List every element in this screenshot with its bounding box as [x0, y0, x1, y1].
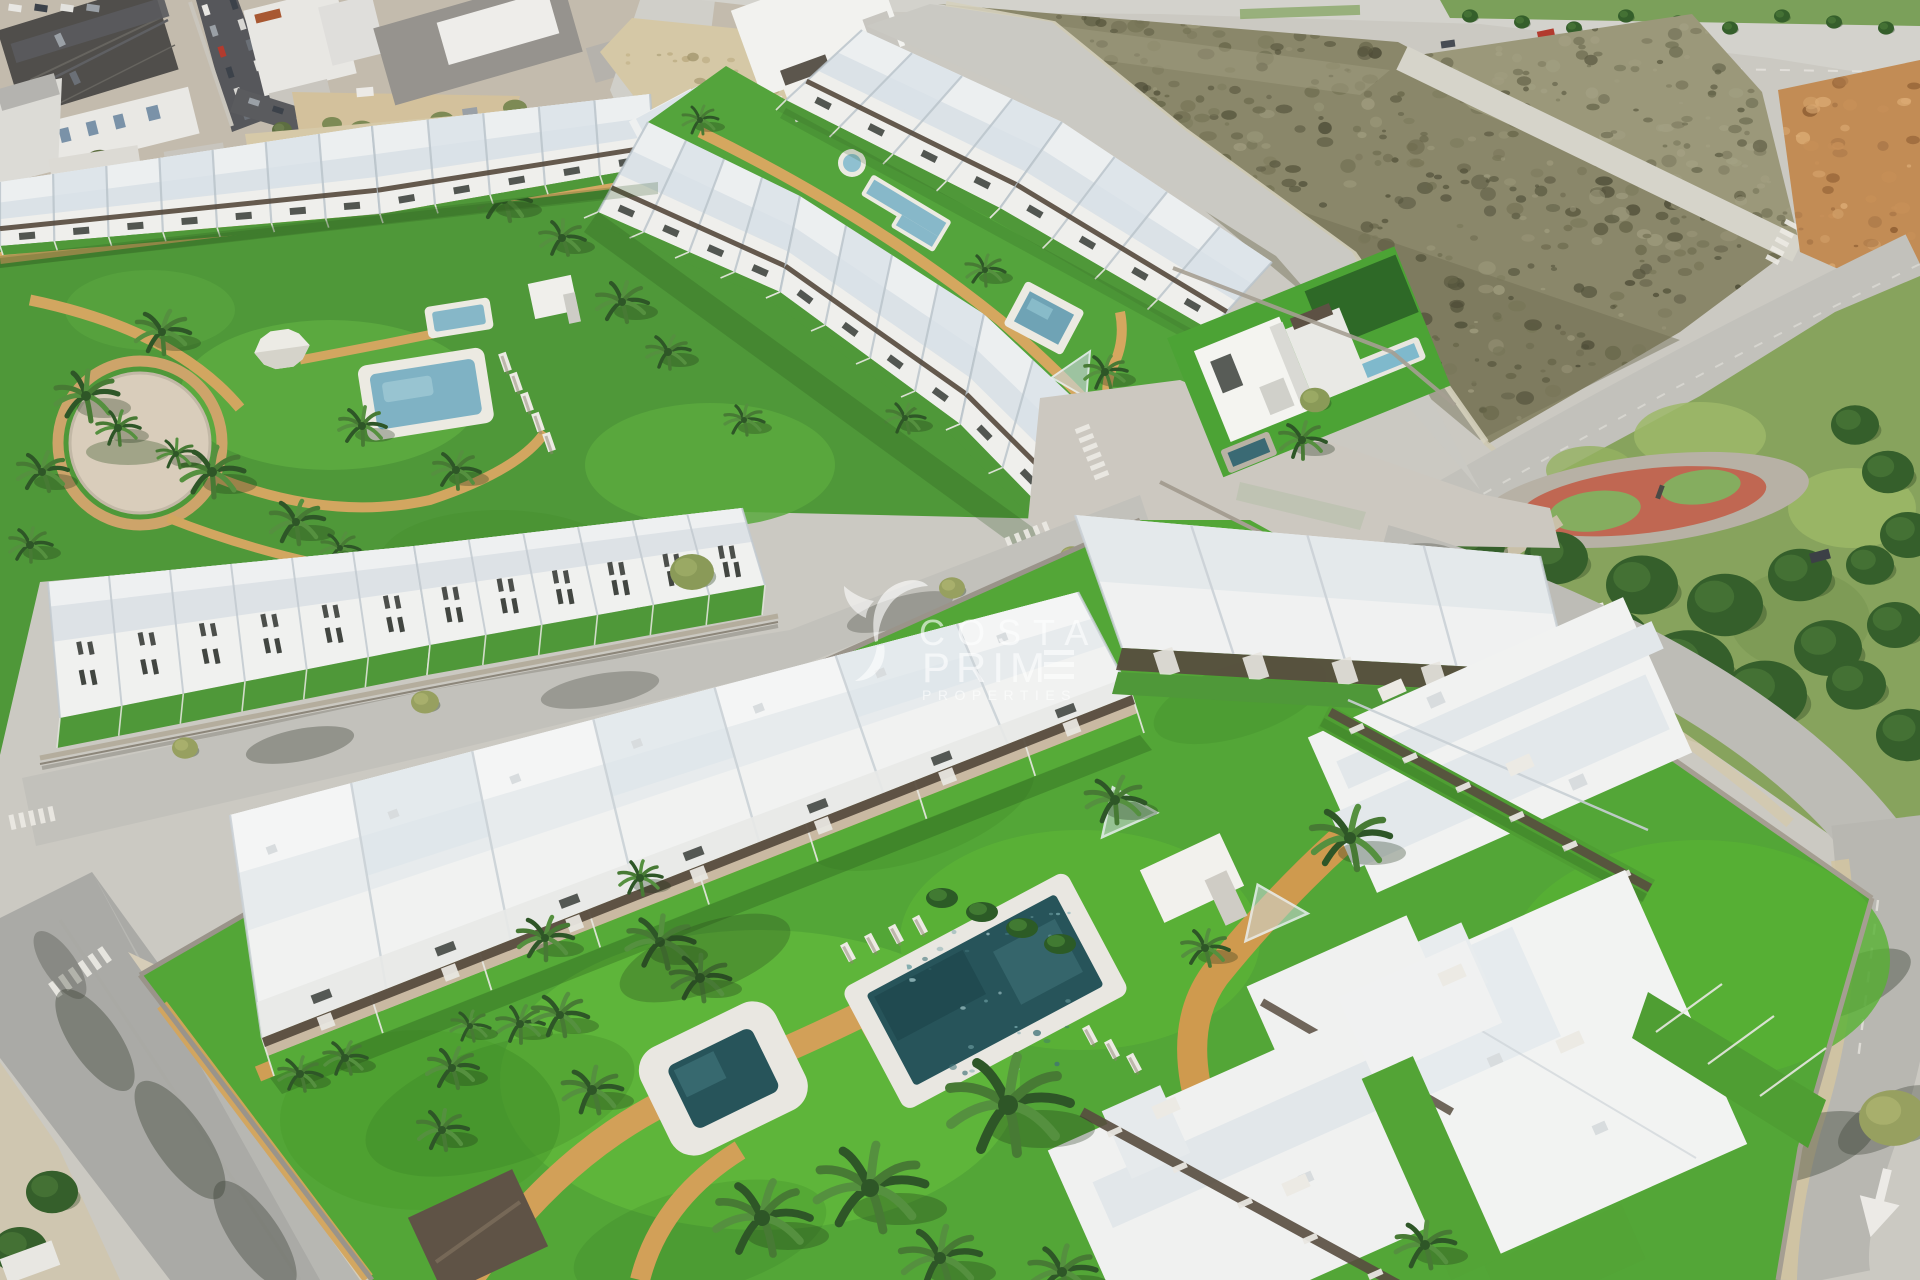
svg-text:PROPERTIES: PROPERTIES [922, 687, 1077, 703]
svg-text:PRIM: PRIM [922, 644, 1051, 691]
